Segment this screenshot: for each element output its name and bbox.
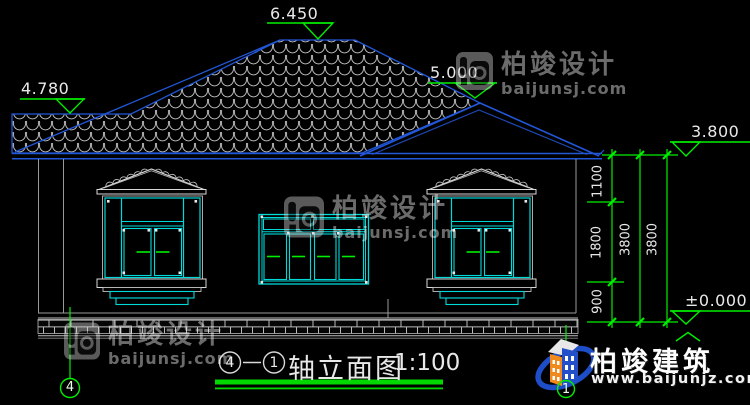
title-underline-thin bbox=[215, 388, 443, 390]
level-label-eave: 3.800 bbox=[691, 122, 739, 141]
brand-logo-url: www.baijunjz.com bbox=[591, 371, 750, 387]
level-label-main-ridge: 6.450 bbox=[270, 4, 318, 23]
plinth-brick-band bbox=[38, 318, 578, 338]
axis-bubble-left-number: 4 bbox=[63, 380, 77, 395]
dim-label-3800-a: 3800 bbox=[619, 223, 634, 257]
drawing-title: 轴立面图 bbox=[288, 347, 404, 386]
bay-window-left bbox=[97, 169, 206, 305]
title-axis-from: 4 bbox=[223, 355, 237, 371]
bay-window-right bbox=[427, 169, 536, 305]
dim-label-3800-b: 3800 bbox=[646, 223, 661, 257]
center-window bbox=[259, 215, 369, 285]
level-label-left-ridge: 4.780 bbox=[21, 79, 69, 98]
title-axis-to: 1 bbox=[267, 355, 281, 371]
level-label-porch-ridge: 5.000 bbox=[430, 63, 478, 82]
drawing-scale: 1:100 bbox=[394, 350, 460, 376]
dim-label-1100: 1100 bbox=[591, 165, 606, 199]
cad-elevation-drawing: 6.450 4.780 5.000 3.800 ±0.000 1100 1800… bbox=[0, 0, 750, 405]
dim-label-1800: 1800 bbox=[590, 226, 605, 260]
dim-label-900: 900 bbox=[591, 289, 606, 315]
level-label-ground: ±0.000 bbox=[685, 291, 747, 310]
axis-bubble-right-number: 1 bbox=[559, 382, 573, 397]
